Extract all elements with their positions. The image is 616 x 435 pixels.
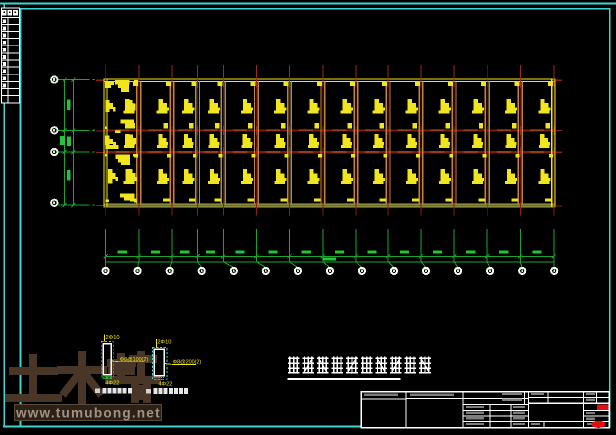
svg-text:2Φ10: 2Φ10 bbox=[106, 335, 120, 341]
svg-text:www.tumubong.net: www.tumubong.net bbox=[15, 406, 161, 421]
svg-text:Φ8@200(2): Φ8@200(2) bbox=[173, 359, 202, 365]
svg-text:4Φ22: 4Φ22 bbox=[105, 380, 119, 386]
svg-text:4Φ22: 4Φ22 bbox=[158, 381, 172, 387]
svg-text:Φ8@100(2): Φ8@100(2) bbox=[120, 357, 149, 363]
svg-text:2Φ10: 2Φ10 bbox=[157, 340, 171, 346]
